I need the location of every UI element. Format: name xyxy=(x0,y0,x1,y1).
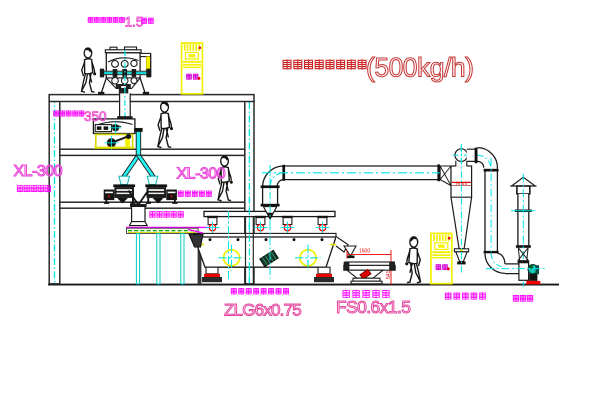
svg-text:350: 350 xyxy=(84,109,107,124)
svg-text:(500kg/h): (500kg/h) xyxy=(366,53,473,83)
svg-text:ZLG6x0.75: ZLG6x0.75 xyxy=(224,301,301,320)
svg-text:FS0.6x1.5: FS0.6x1.5 xyxy=(336,297,410,317)
svg-text:XL-300: XL-300 xyxy=(14,163,63,180)
svg-text:1500: 1500 xyxy=(359,249,370,255)
svg-text:1.5: 1.5 xyxy=(125,15,144,30)
svg-text:541: 541 xyxy=(386,270,392,279)
svg-text:XL-300: XL-300 xyxy=(177,166,226,183)
